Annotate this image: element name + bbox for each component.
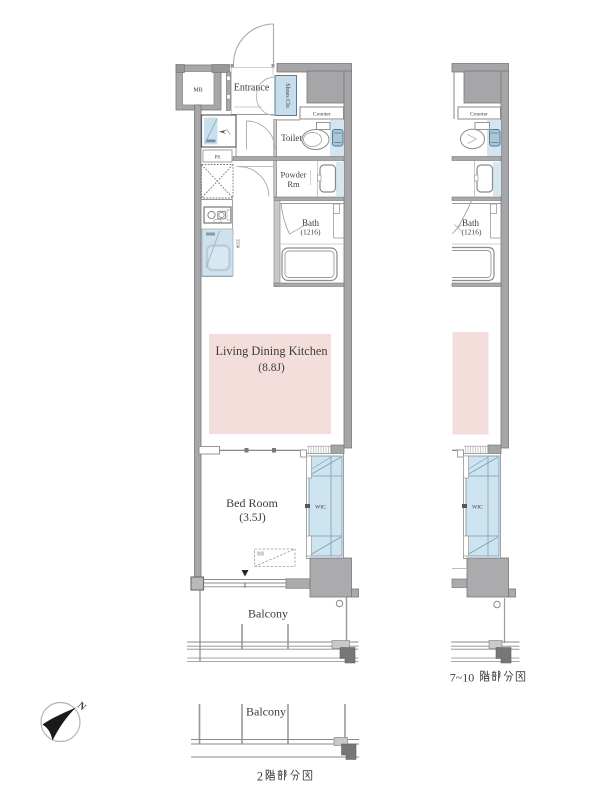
svg-text:WIC: WIC (315, 505, 326, 511)
svg-text:(8.8J): (8.8J) (258, 362, 285, 374)
svg-text:2550: 2550 (236, 239, 241, 249)
svg-text:Shoes Clo: Shoes Clo (284, 83, 290, 108)
svg-text:Bath: Bath (302, 218, 319, 228)
svg-text:(1216): (1216) (462, 228, 482, 237)
svg-text:7~10: 7~10 (450, 671, 475, 685)
svg-text:Bed Room: Bed Room (226, 496, 278, 510)
svg-text:Rm: Rm (287, 179, 300, 189)
svg-text:Entrance: Entrance (234, 83, 270, 94)
svg-text:Toilet: Toilet (281, 133, 302, 143)
svg-text:WIC: WIC (472, 505, 483, 511)
svg-text:(3.5J): (3.5J) (239, 512, 266, 524)
svg-text:Balcony: Balcony (248, 607, 288, 621)
svg-text:Living Dining Kitchen: Living Dining Kitchen (215, 344, 327, 358)
svg-text:Bath: Bath (462, 218, 479, 228)
svg-text:(1216): (1216) (301, 228, 321, 237)
svg-text:Powder: Powder (281, 170, 307, 180)
svg-text:Counter: Counter (313, 112, 331, 118)
svg-text:Counter: Counter (470, 112, 488, 118)
svg-text:Balcony: Balcony (246, 705, 286, 719)
svg-text:2: 2 (257, 770, 263, 784)
svg-text:PS: PS (215, 156, 221, 161)
svg-text:MB: MB (193, 88, 202, 94)
